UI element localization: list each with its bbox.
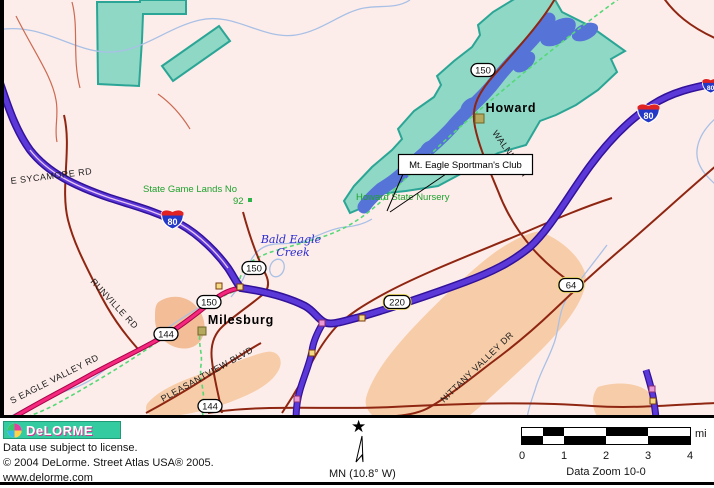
label-game-lands: State Game Lands No [143,184,237,195]
town-label-howard: Howard [486,101,537,115]
scale-unit-label: mi [695,428,707,440]
svg-text:150: 150 [246,264,262,275]
route-shield-144-south: 144 [198,400,222,413]
scale-segment [606,436,648,444]
interstate-shield-80-east: 80 [638,104,660,123]
scale-bar-bottom-row [522,436,690,444]
data-zoom-label: Data Zoom 10-0 [566,466,645,478]
footer-bar: DeLORME Data use subject to license. © 2… [0,418,714,488]
scale-bar-top-row [522,428,690,436]
interstate-shield-80-edge: 80 [702,79,714,93]
copyright-text: © 2004 DeLorme. Street Atlas USA® 2005. [3,457,214,469]
route-shield-150-howard: 150 [471,64,495,77]
road-label-runville: RUNVILLE RD [89,277,141,331]
svg-text:144: 144 [202,402,218,413]
route-shield-64: 64 [559,279,583,292]
svg-text:144: 144 [158,330,174,341]
svg-text:150: 150 [475,66,491,77]
town-label-milesburg: Milesburg [208,313,274,327]
map-neatline-left [0,0,4,418]
label-creek-line1: Bald Eagle [260,233,322,246]
svg-text:64: 64 [566,281,577,292]
compass-star-icon: ★ [351,418,366,435]
scale-tick-4: 4 [687,450,693,462]
route-shield-220: 220 [384,296,410,309]
scale-segment [543,428,564,436]
svg-text:220: 220 [389,298,405,309]
compass-needle-icon [353,435,367,470]
delorme-map-window: E SYCAMORE RD RUNVILLE RD S EAGLE VALLEY… [0,0,714,488]
scale-bar [521,427,691,445]
scale-segment [564,428,606,436]
svg-text:150: 150 [201,298,217,309]
route-shield-150-milesburg: 150 [197,296,221,309]
scale-segment [522,428,543,436]
scale-segment [606,428,648,436]
scale-segment [543,436,564,444]
scale-tick-1: 1 [561,450,567,462]
scale-tick-3: 3 [645,450,651,462]
scale-segment [522,436,543,444]
scale-segment [648,436,690,444]
scale-segment [648,428,690,436]
label-creek-line2: Creek [276,246,310,259]
label-nursery: Howard State Nursery [356,192,450,203]
svg-text:80: 80 [707,85,714,92]
route-shield-150-mid: 150 [242,262,266,275]
game-lands-dot [248,198,252,202]
delorme-logo-text: DeLORME [26,424,93,437]
poi-callout-label: Mt. Eagle Sportman's Club [409,160,522,171]
magnetic-north-label: MN (10.8° W) [329,468,396,480]
label-game-lands-number: 92 [233,196,244,207]
svg-text:80: 80 [167,217,177,227]
map-canvas[interactable]: E SYCAMORE RD RUNVILLE RD S EAGLE VALLEY… [0,0,714,418]
license-text: Data use subject to license. [3,442,138,454]
route-shield-144-west: 144 [154,328,178,341]
scale-tick-0: 0 [519,450,525,462]
window-bottom-border [0,482,714,485]
scale-tick-2: 2 [603,450,609,462]
major-roads [64,0,714,416]
delorme-logo: DeLORME [3,421,121,439]
svg-text:80: 80 [643,111,653,121]
delorme-globe-icon [7,423,22,438]
scale-segment [564,436,606,444]
